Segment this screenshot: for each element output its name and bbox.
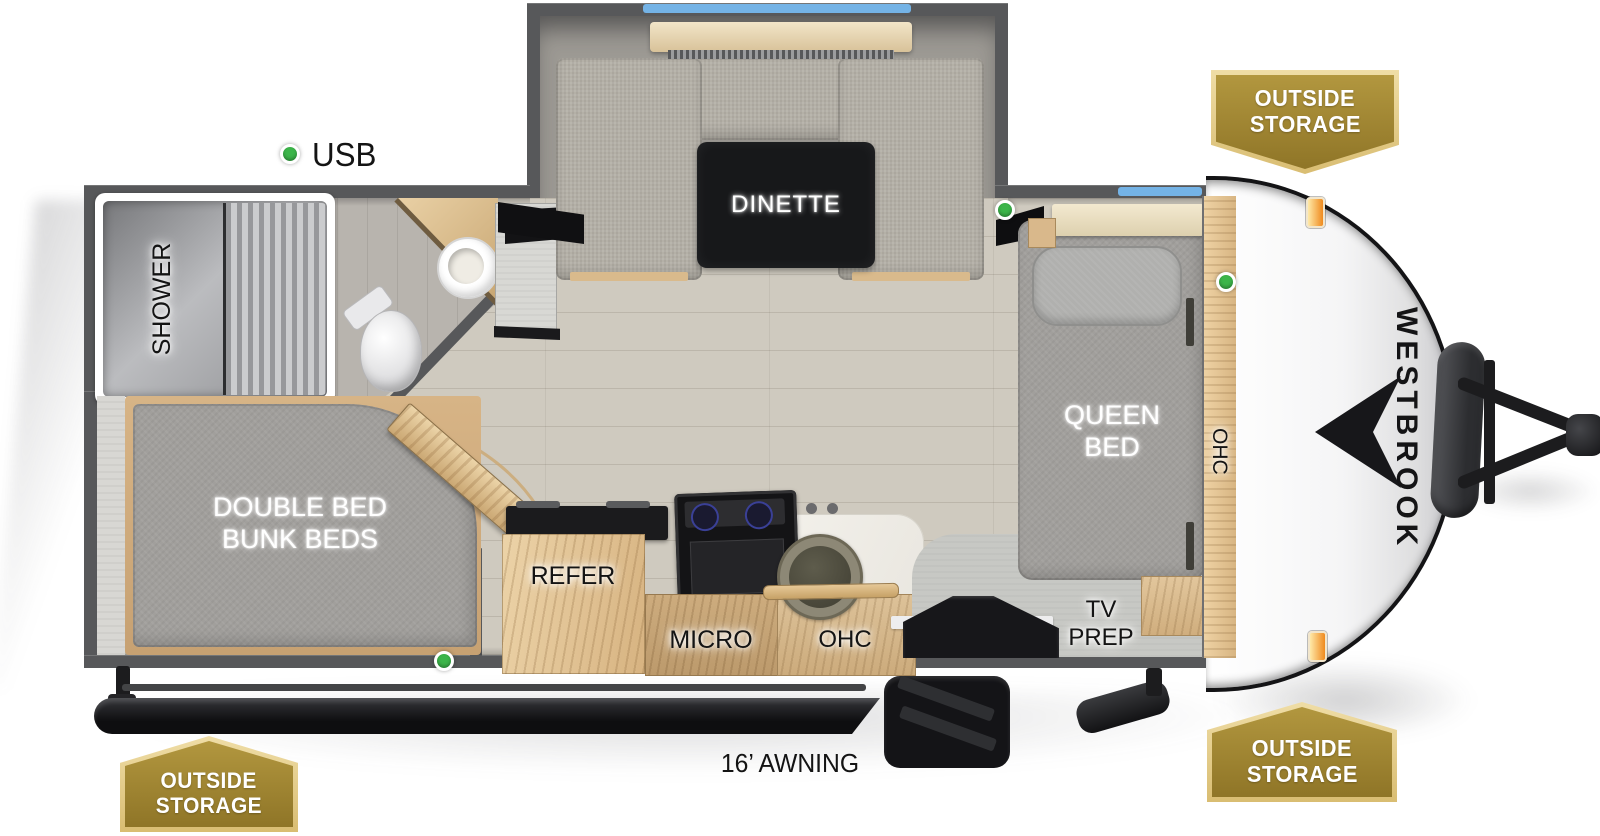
queen-bed-label-line1: QUEEN <box>1022 400 1202 431</box>
bedroom-ohc-label: OHC <box>1207 428 1231 472</box>
cabinet-handle-icon <box>1186 522 1194 570</box>
floorplan-canvas: WESTBROOK SHOWER DOUBLE BED BUNK BEDS RE… <box>0 0 1600 836</box>
shower-curtain <box>223 203 326 395</box>
led-icon <box>434 651 454 671</box>
bunk-bed-label-line2: BUNK BEDS <box>180 524 420 555</box>
shower-label: SHOWER <box>148 234 178 364</box>
refrigerator <box>502 534 645 674</box>
badge-line: OUTSIDE <box>161 768 257 793</box>
burner-icon <box>690 503 719 532</box>
burner-icon <box>744 501 773 530</box>
usb-label: USB <box>312 136 407 172</box>
led-icon <box>995 200 1015 220</box>
badge-line: STORAGE <box>156 793 262 818</box>
toilet-icon <box>360 310 422 392</box>
awning-label: 16’ AWNING <box>695 748 885 778</box>
dinette-bench-left <box>556 58 702 280</box>
faucet-knob-icon <box>827 503 838 514</box>
badge-line: STORAGE <box>1249 111 1360 137</box>
refrigerator-handle-icon <box>606 501 650 508</box>
awning-rail <box>122 684 866 691</box>
queen-bed-label-line2: BED <box>1022 432 1202 463</box>
awning-tube <box>94 698 880 734</box>
usb-led-icon <box>280 144 300 164</box>
bedroom-ohc-strip <box>1202 196 1236 658</box>
badge-line: OUTSIDE <box>1255 85 1355 111</box>
nightstand <box>1141 576 1203 636</box>
bathroom-sink-bowl <box>448 248 484 284</box>
bench-trim <box>852 272 970 281</box>
kitchen-ohc-label: OHC <box>780 626 910 654</box>
queen-pillow <box>1032 246 1182 326</box>
microwave-label: MICRO <box>648 626 774 655</box>
led-icon <box>1216 272 1236 292</box>
awning-arm-bracket <box>1146 668 1162 696</box>
faucet-knob-icon <box>806 503 817 514</box>
dinette-table: DINETTE <box>697 142 875 268</box>
badge-line: OUTSIDE <box>1252 735 1352 761</box>
bench-trim <box>570 272 688 281</box>
entry-steps <box>884 676 1010 768</box>
refrigerator-handle-icon <box>516 501 560 508</box>
shower <box>95 193 335 405</box>
tv-prep-label-line2: PREP <box>1058 624 1144 652</box>
cabinet-handle-icon <box>1186 298 1194 346</box>
bunk-bed-label-line1: DOUBLE BED <box>180 492 420 523</box>
valance <box>650 22 912 52</box>
faucet-bar <box>763 583 899 600</box>
badge-line: STORAGE <box>1246 761 1357 787</box>
bed-head-shelf <box>1052 204 1204 236</box>
dinette-label: DINETTE <box>731 191 841 219</box>
vent-icon <box>668 50 894 59</box>
bunk-headboard-panel <box>97 396 125 655</box>
refrigerator-label: REFER <box>508 562 638 591</box>
tv-prep-label-line1: TV <box>1058 596 1144 624</box>
bed-head-wood <box>1028 218 1056 248</box>
